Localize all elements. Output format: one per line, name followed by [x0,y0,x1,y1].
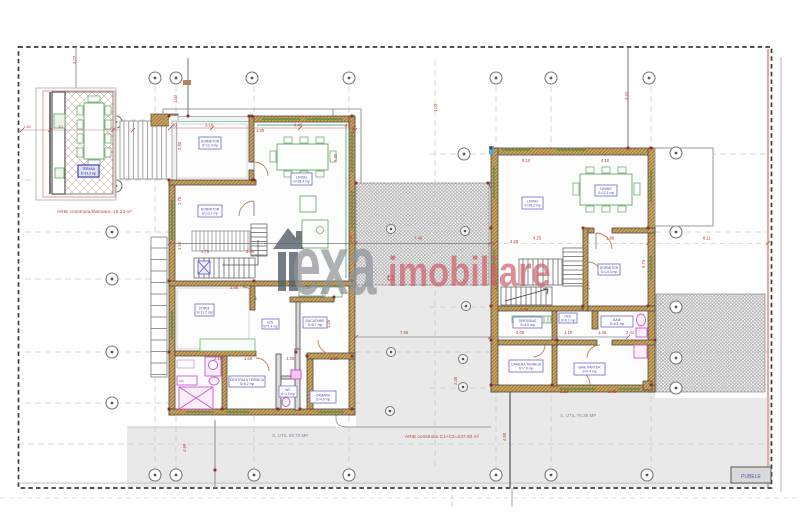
svg-text:2.05: 2.05 [520,307,529,312]
svg-text:S=28.4 mp: S=28.4 mp [293,179,310,183]
svg-text:S=12.4 mp: S=12.4 mp [202,143,219,147]
svg-text:S=26.2 mp: S=26.2 mp [524,203,541,207]
svg-text:1.75: 1.75 [201,249,210,254]
svg-text:ARIE construita/tăietoare=19.2: ARIE construita/tăietoare=19.23 m² [57,209,132,215]
svg-text:8.11: 8.11 [703,236,712,241]
svg-text:S=6.2 mp: S=6.2 mp [561,318,576,322]
svg-text:1.46: 1.46 [608,389,617,394]
svg-text:3.10: 3.10 [205,123,214,128]
svg-text:4.90: 4.90 [502,432,507,441]
svg-text:1.02: 1.02 [433,103,438,112]
svg-text:S=7.4 mp: S=7.4 mp [263,324,278,328]
svg-text:PUBELE: PUBELE [741,474,761,480]
svg-text:ARIE construita C1+C2=247.93 m: ARIE construita C1+C2=247.93 m² [405,434,480,440]
svg-text:4.25: 4.25 [533,236,542,241]
svg-text:S=1.9 mp: S=1.9 mp [281,392,295,396]
svg-text:1.50: 1.50 [23,124,32,129]
svg-text:2.45: 2.45 [453,376,458,385]
svg-text:2.41: 2.41 [626,330,635,335]
svg-text:1.86: 1.86 [606,236,615,241]
svg-text:3.52: 3.52 [624,91,629,100]
svg-text:MS: MS [179,379,184,383]
svg-text:1.46: 1.46 [598,330,607,335]
svg-text:1.75: 1.75 [177,196,182,205]
svg-text:S=13.1 mp: S=13.1 mp [202,211,219,215]
svg-text:imobiliare: imobiliare [388,249,551,296]
svg-text:2.90: 2.90 [177,141,182,150]
svg-text:S=7.9 mp: S=7.9 mp [519,366,534,370]
svg-text:S=5.2 mp: S=5.2 mp [240,382,255,386]
svg-text:1.50: 1.50 [177,241,182,250]
svg-text:exa: exa [292,218,377,312]
svg-text:.40: .40 [171,123,177,128]
svg-text:1.10: 1.10 [560,389,569,394]
svg-text:2.10: 2.10 [214,356,223,361]
svg-text:S=8.7 mp: S=8.7 mp [308,323,323,327]
svg-text:.40: .40 [344,123,350,128]
svg-text:2.98: 2.98 [230,285,239,290]
svg-text:S=4.4 mp: S=4.4 mp [582,369,597,373]
svg-text:4.25: 4.25 [510,239,519,244]
svg-text:2.05: 2.05 [516,330,525,335]
svg-text:1.30: 1.30 [256,128,265,133]
svg-text:1.60: 1.60 [244,356,253,361]
svg-text:1.19: 1.19 [564,330,573,335]
svg-text:S=5.1 mp: S=5.1 mp [610,322,625,326]
svg-text:1.30: 1.30 [286,356,295,361]
svg-text:1.77: 1.77 [586,281,591,290]
svg-text:7.46: 7.46 [414,236,423,241]
svg-text:S=14.2 mp: S=14.2 mp [81,172,97,176]
svg-text:1.02: 1.02 [173,94,178,103]
svg-text:S=4.9 mp: S=4.9 mp [316,397,331,401]
svg-text:3.05: 3.05 [326,319,331,328]
svg-text:7.06: 7.06 [400,330,409,335]
svg-text:6.10: 6.10 [522,158,531,163]
svg-text:4.99: 4.99 [182,443,187,452]
svg-text:3.07: 3.07 [72,55,77,64]
svg-text:7.30: 7.30 [333,153,338,162]
svg-text:5.75: 5.75 [641,259,646,268]
svg-text:S=4.6 mp: S=4.6 mp [520,323,535,327]
svg-text:S=12.1 mp: S=12.1 mp [598,191,615,195]
svg-text:.10: .10 [57,124,63,129]
svg-text:S. UTIL 69.73 MP: S. UTIL 69.73 MP [272,433,308,438]
svg-text:1.20: 1.20 [330,356,339,361]
svg-text:4.10: 4.10 [601,158,610,163]
svg-text:TERASA: TERASA [82,167,96,171]
svg-text:S. UTIL 75.36 MP: S. UTIL 75.36 MP [560,413,596,418]
svg-text:S=11.2 mp: S=11.2 mp [196,310,212,314]
svg-text:S=14.3 mp: S=14.3 mp [601,270,618,274]
svg-text:2.08: 2.08 [246,249,255,254]
